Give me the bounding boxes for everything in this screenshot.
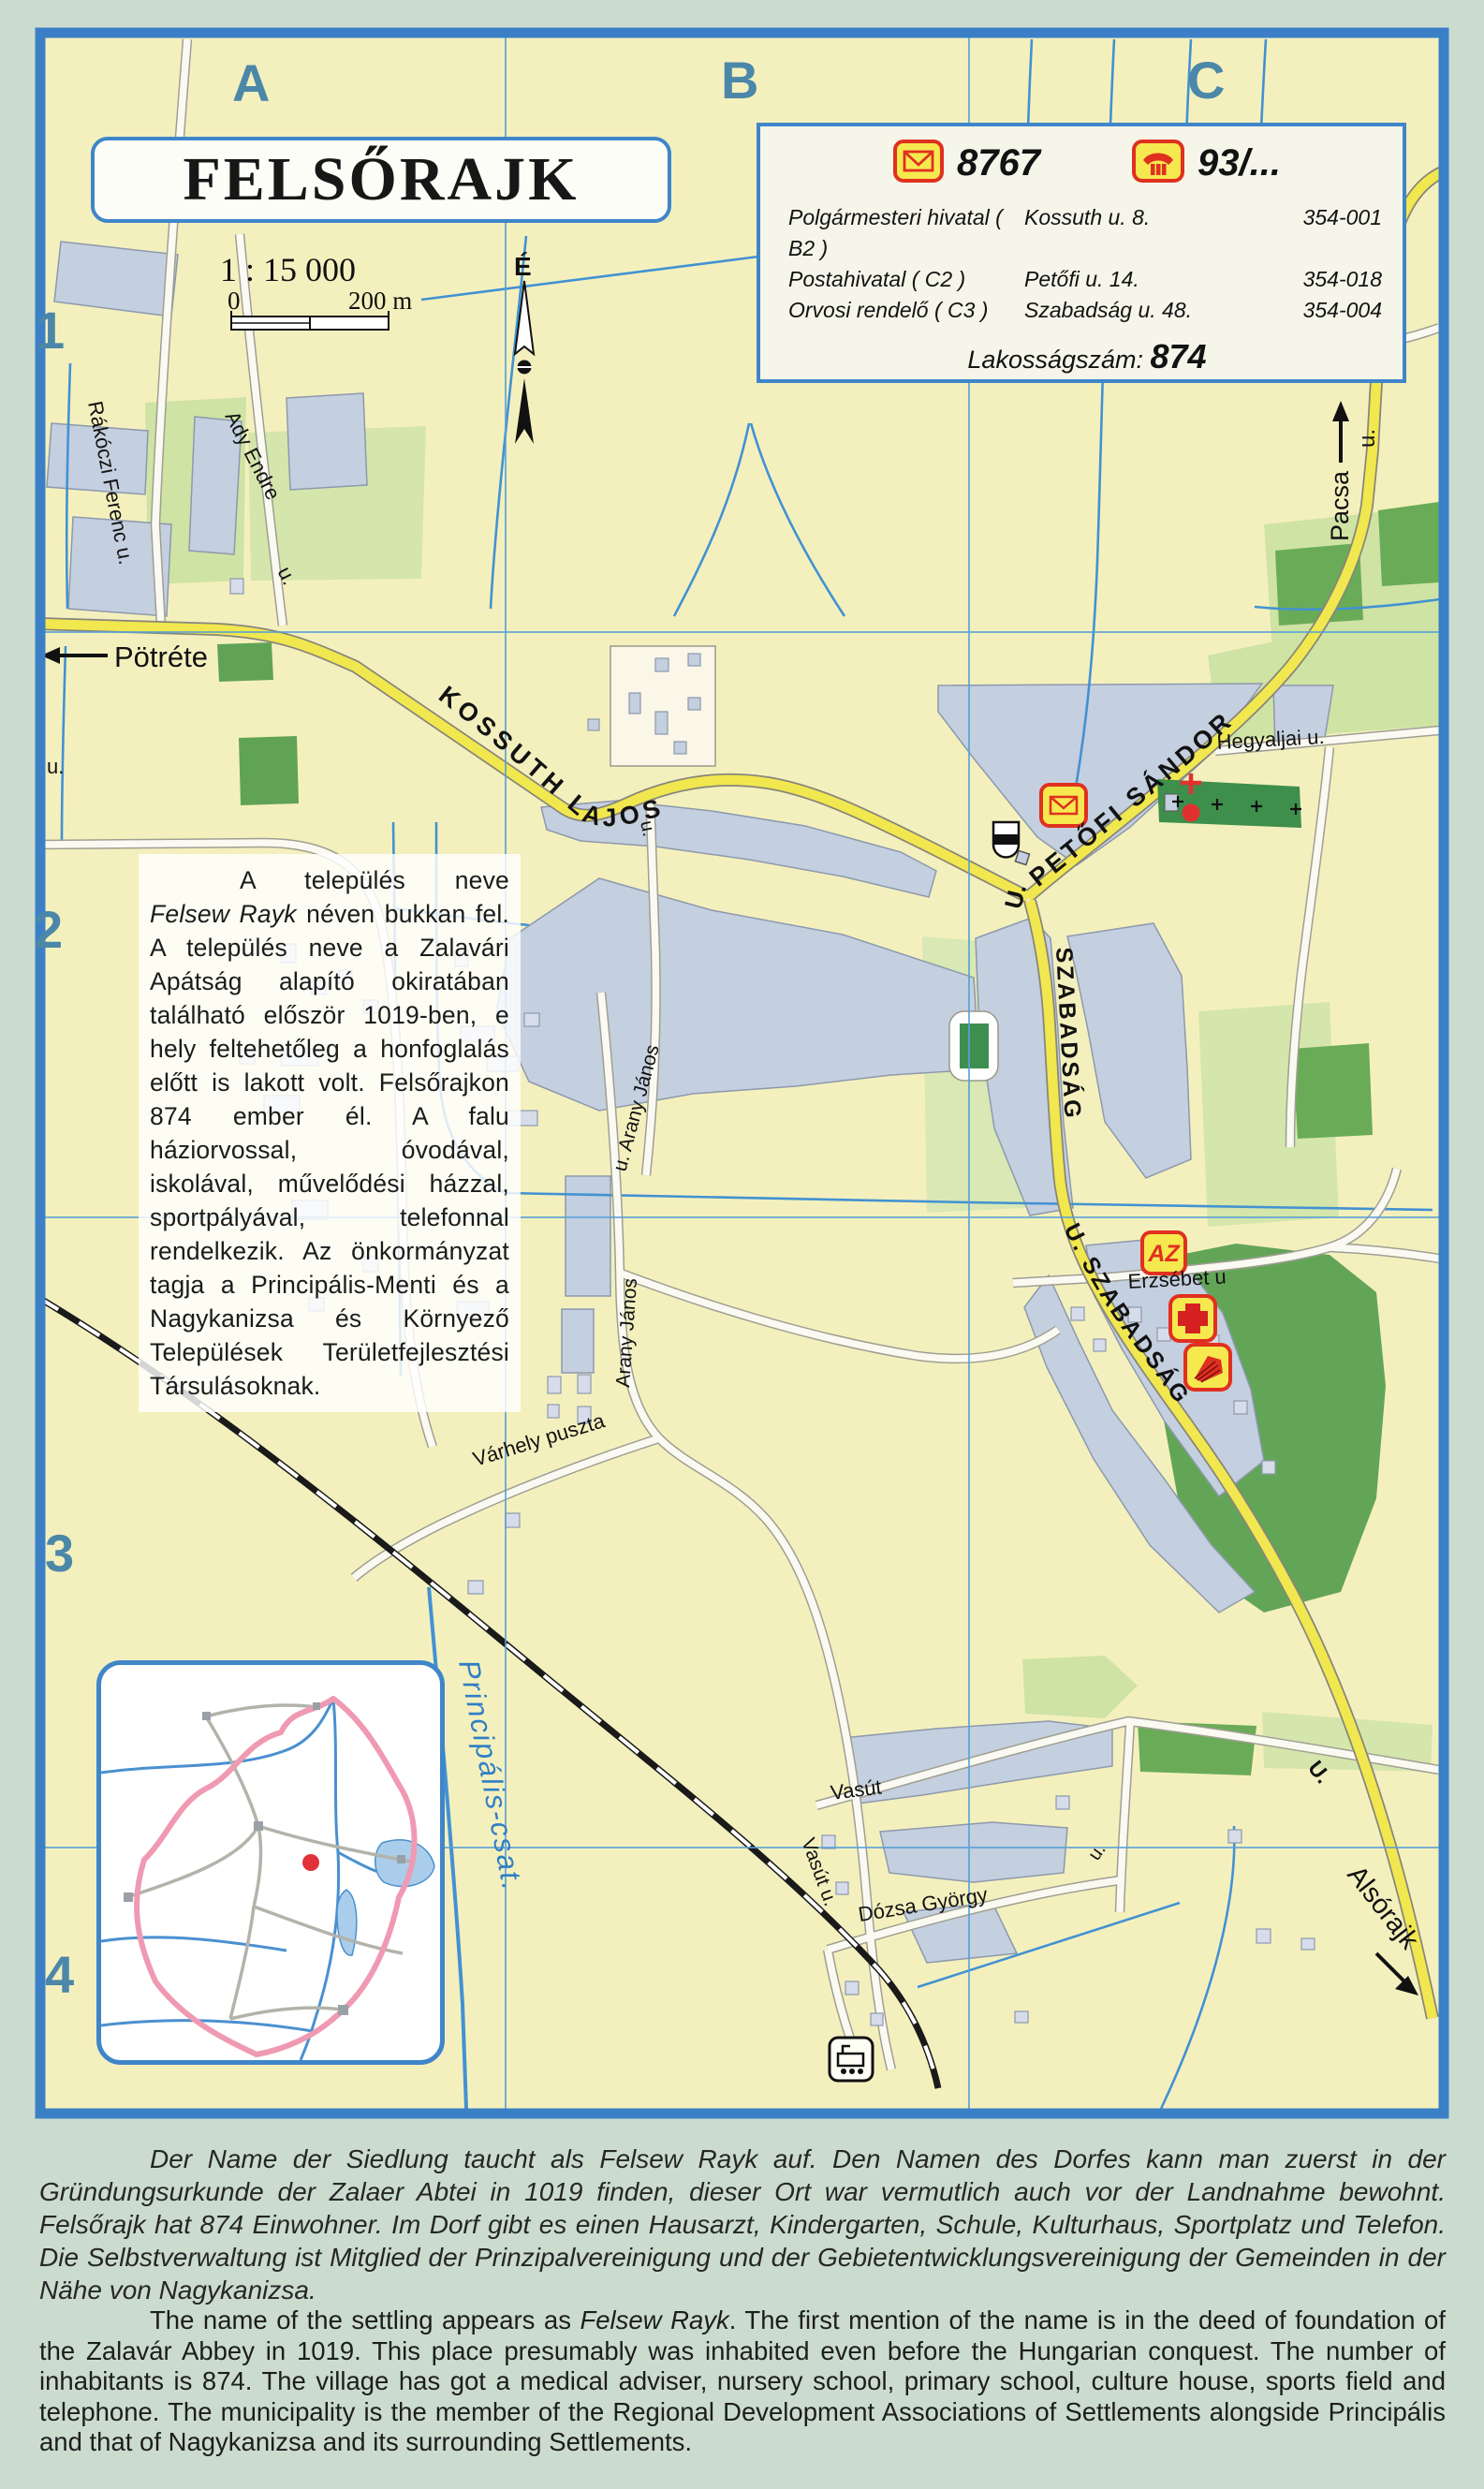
description-body: néven bukkan fel. A település neve a Zal… xyxy=(150,900,509,1400)
info-row: Orvosi rendelő ( C3 ) Szabadság u. 48. 3… xyxy=(788,295,1386,326)
german-text: Der Name der Siedlung taucht als Felsew … xyxy=(39,2144,1446,2305)
info-row: Postahivatal ( C2 ) Petőfi u. 14. 354-01… xyxy=(788,264,1386,295)
svg-text:0: 0 xyxy=(228,287,241,315)
inset-towns xyxy=(124,1702,405,2015)
population-line: Lakosságszám: 874 xyxy=(788,337,1386,376)
institution-phone: 354-004 xyxy=(1212,295,1386,326)
az-label: AZ xyxy=(1147,1241,1181,1267)
svg-text:200 m: 200 m xyxy=(348,287,412,315)
page-title: FELSŐRAJK xyxy=(183,144,579,215)
info-box-entries: Polgármesteri hivatal ( B2 ) Kossuth u. … xyxy=(788,202,1386,326)
row-label-4: 4 xyxy=(45,1945,74,2004)
english-lead: The name of the settling appears as xyxy=(150,2305,580,2334)
population-value: 874 xyxy=(1151,337,1207,376)
population-label: Lakosságszám: xyxy=(967,346,1143,374)
direction-label-potrete: Pötréte xyxy=(114,641,208,673)
svg-text:É: É xyxy=(514,252,532,281)
inset-boundary xyxy=(137,1699,415,2055)
description-lead: A település neve xyxy=(240,866,509,894)
sports-field xyxy=(949,1011,998,1081)
row-label-3: 3 xyxy=(45,1524,74,1583)
village-location-dot xyxy=(302,1854,319,1871)
map-title-box: FELSŐRAJK xyxy=(91,137,671,223)
column-label-a: A xyxy=(232,53,270,112)
info-row: Polgármesteri hivatal ( B2 ) Kossuth u. … xyxy=(788,202,1386,264)
train-station-icon xyxy=(830,2038,873,2081)
institution-address: Petőfi u. 14. xyxy=(1024,264,1212,295)
column-label-c: C xyxy=(1187,51,1225,110)
institution-phone: 354-001 xyxy=(1212,202,1386,264)
direction-label-pacsa-u: u. xyxy=(1355,429,1380,448)
institution-name: Postahivatal ( C2 ) xyxy=(788,264,1024,295)
phone-code: 93/... xyxy=(1197,142,1281,184)
street-label-u-left: u. xyxy=(47,755,64,778)
row-label-2: 2 xyxy=(34,900,63,959)
institution-name: Polgármesteri hivatal ( B2 ) xyxy=(788,202,1024,264)
scanned-map-page: AZ É 1 : 15 000 0 200 m KOSSUTH LAJOS xyxy=(0,0,1484,2489)
info-box-header: 8767 93/... xyxy=(788,140,1386,187)
description-hungarian: A település neve Felsew Rayk néven bukka… xyxy=(139,854,521,1412)
description-german: Der Name der Siedlung taucht als Felsew … xyxy=(39,2143,1446,2306)
phone-icon xyxy=(1132,140,1184,187)
inset-roads xyxy=(127,1705,410,2019)
column-label-b: B xyxy=(721,51,758,110)
info-box: 8767 93/... Polgármesteri hivatal ( B2 )… xyxy=(757,123,1406,383)
historic-name: Felsew Rayk xyxy=(150,900,297,928)
institution-phone: 354-018 xyxy=(1212,264,1386,295)
row-label-1: 1 xyxy=(36,301,65,360)
institution-name: Orvosi rendelő ( C3 ) xyxy=(788,295,1024,326)
envelope-icon xyxy=(893,140,944,187)
inset-rivers xyxy=(101,1699,403,2060)
direction-label-pacsa: Pacsa xyxy=(1326,470,1354,541)
doctor-cross-icon xyxy=(1170,1296,1215,1341)
svg-text:1 : 15 000: 1 : 15 000 xyxy=(220,251,356,288)
inset-locator-map xyxy=(96,1660,445,2065)
postal-code: 8767 xyxy=(957,142,1040,184)
institution-address: Kossuth u. 8. xyxy=(1024,202,1212,264)
school-book-icon xyxy=(1185,1345,1230,1390)
post-office-map-icon xyxy=(1041,785,1086,826)
description-english: The name of the settling appears as Fels… xyxy=(39,2305,1446,2458)
historic-name-english: Felsew Rayk xyxy=(580,2305,728,2334)
institution-address: Szabadság u. 48. xyxy=(1024,295,1212,326)
